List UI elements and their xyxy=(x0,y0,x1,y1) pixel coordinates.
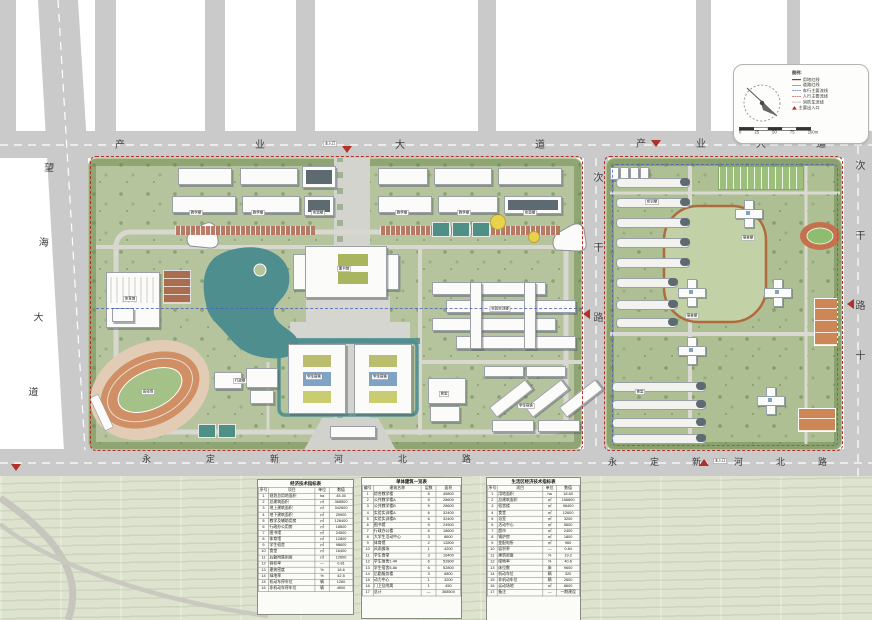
building-list-table: 单体建筑一览表编号建筑名称层数面积1综合教学楼5458002公共教学楼A5286… xyxy=(361,477,462,619)
building-label: 实验楼 xyxy=(311,210,325,216)
building-label: 实验楼 xyxy=(523,210,537,216)
building-label: 学生宿舍 xyxy=(306,374,323,380)
dorm-tower xyxy=(678,337,704,363)
site-plan: 教学楼 教学楼 实验楼 教学楼 教学楼 实验楼 图书馆 体育馆 田径场 学生宿舍… xyxy=(0,0,872,620)
road-label-bottom-left: 永定新河北路 xyxy=(142,452,526,465)
indicator-table-1: 经济技术指标表序号项目单位数值1规划总用地面积ha45.302总建筑面积㎡368… xyxy=(257,479,354,615)
building-label: 行政楼 xyxy=(233,378,247,384)
building-label: 教学楼 xyxy=(395,210,409,216)
road-label-right: 次干路 xyxy=(851,160,866,370)
road-label-middle: 次干路 xyxy=(589,172,604,382)
red-boundary-main xyxy=(90,156,583,451)
building-label: 宿舍楼 xyxy=(685,313,699,319)
building-label: 田径场 xyxy=(141,389,155,395)
dorm-tower xyxy=(764,279,790,305)
legend-card: 0255075100m 图例: 用地红线道路红线车行主要流线人行主要流线消防车流… xyxy=(733,64,869,144)
road-label-top-left: 产业大道 xyxy=(115,136,675,151)
building-label: 实训楼 xyxy=(645,199,659,205)
building-label: 宿舍楼 xyxy=(741,235,755,241)
legend-list: 图例: 用地红线道路红线车行主要流线人行主要流线消防车流线主要出入口 xyxy=(792,70,866,140)
legend-title: 图例: xyxy=(792,70,866,76)
road-label-left: 望海大道 xyxy=(19,161,55,461)
building-label: 教学楼 xyxy=(189,210,203,216)
dorm-tower xyxy=(735,200,761,226)
road-label-bottom-right: 永定新河北路 xyxy=(608,455,860,468)
building-label: 学生宿舍 xyxy=(372,374,389,380)
indicator-table-2: 生活区经济技术指标表序号项目单位数值1用地面积ha18.602总建筑面积㎡156… xyxy=(486,477,581,620)
building-label: 教学楼 xyxy=(457,210,471,216)
building-label: 学生宿舍 xyxy=(518,403,535,409)
building-label: 图书馆 xyxy=(337,266,351,272)
building-label: 教学楼 xyxy=(251,210,265,216)
building-label: 实验实训楼 xyxy=(490,306,511,312)
building-label: 食堂 xyxy=(439,391,449,397)
dorm-tower xyxy=(678,279,704,305)
building-label: 食堂 xyxy=(635,389,645,395)
building-label: 体育馆 xyxy=(123,296,137,302)
blue-setback-line xyxy=(612,164,838,446)
road-label-right-extra: 十 xyxy=(851,350,866,360)
compass-icon xyxy=(738,79,786,127)
dorm-tower xyxy=(757,387,783,413)
